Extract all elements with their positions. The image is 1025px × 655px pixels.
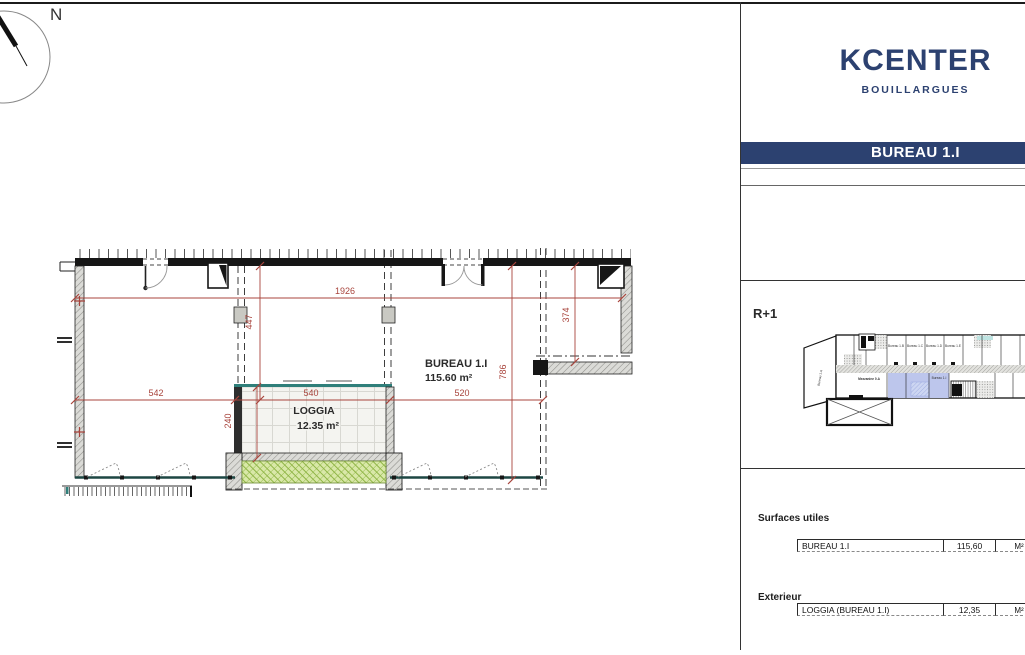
planter <box>242 461 386 483</box>
door-shaft-details <box>208 263 624 288</box>
dim-room-depth: 786 <box>498 364 508 379</box>
key-plan: Bureau 1.A Bureau 1.B Bureau 1.C Bureau … <box>799 326 1025 438</box>
panel-rule <box>741 280 1025 281</box>
title-panel: KCENTER BOUILLARGUES BUREAU 1.I R+1 <box>741 0 1025 650</box>
panel-rule <box>741 185 1025 186</box>
wall-tick-strip <box>75 249 631 258</box>
north-arrow: N <box>0 0 62 103</box>
column <box>382 307 395 323</box>
drawing-area: N <box>0 0 740 650</box>
surface-name: BUREAU 1.I <box>797 539 944 552</box>
unit-banner: BUREAU 1.I <box>741 142 1025 164</box>
surface-unit: M² <box>995 603 1025 616</box>
surfaces-interior-row: BUREAU 1.I 115,60 M² <box>797 539 1025 552</box>
dim-loggia-width: 540 <box>303 388 318 398</box>
floor-plan: N <box>0 0 740 650</box>
level-label: R+1 <box>753 306 777 321</box>
surfaces-exterior-title: Exterieur <box>758 592 801 603</box>
keyplan-stair-core <box>951 381 976 398</box>
keyplan-terrace <box>827 399 892 425</box>
dim-left-width: 542 <box>148 388 163 398</box>
surface-unit: M² <box>995 539 1025 552</box>
room-area-label: 115.60 m² <box>425 372 473 384</box>
surface-value: 12,35 <box>943 603 996 616</box>
drawing-sheet: { "compass": { "north": "N" }, "plan": {… <box>0 0 1025 650</box>
brand-subtitle: BOUILLARGUES <box>741 84 1025 96</box>
dim-overall-width: 1926 <box>335 286 355 296</box>
surfaces-exterior-row: LOGGIA (BUREAU 1.I) 12,35 M² <box>797 603 1025 616</box>
keyplan-unit-b-label: Bureau 1.B <box>888 344 904 348</box>
keyplan-unit-c-label: Bureau 1.C <box>907 344 924 348</box>
north-label: N <box>50 5 62 24</box>
keyplan-unit-e-label: Bureau 1.E <box>945 344 961 348</box>
surfaces-interior-title: Surfaces utiles <box>758 513 829 524</box>
keyplan-unit-mezz-label: Mezzanine 0.A <box>858 377 880 381</box>
room-name-label: BUREAU 1.I <box>425 358 487 370</box>
brand-title: KCENTER <box>741 46 1025 76</box>
dim-bay-height: 447 <box>244 314 254 329</box>
surface-value: 115,60 <box>943 539 996 552</box>
panel-rule <box>741 168 1025 169</box>
loggia-name-label: LOGGIA <box>293 405 335 417</box>
dim-right-height: 374 <box>561 307 571 322</box>
surface-name: LOGGIA (BUREAU 1.I) <box>797 603 944 616</box>
keyplan-core <box>859 334 875 350</box>
dim-loggia-depth: 240 <box>223 413 233 428</box>
entry-doors <box>143 264 484 290</box>
keyplan-corridor <box>836 365 1025 373</box>
keyplan-unit-d-label: Bureau 1.D <box>926 344 943 348</box>
keyplan-unit-i-label: Bureau 1.I <box>932 376 947 380</box>
brand-block: KCENTER BOUILLARGUES <box>741 46 1025 96</box>
loggia-area-label: 12.35 m² <box>297 420 340 432</box>
dim-right-width: 520 <box>454 388 469 398</box>
panel-rule <box>741 468 1025 469</box>
step-wall <box>547 362 632 374</box>
